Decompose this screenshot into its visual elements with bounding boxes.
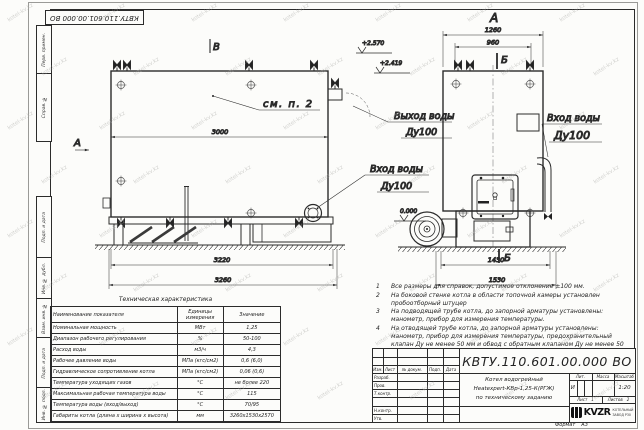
product-name: Котел водогрейный Heatexpert-КВр-1,25-К(… [459, 373, 569, 406]
technical-drawing: В см. п. 2 3000 А [50, 9, 634, 305]
table-row: Гидравлическое сопротивление котлаМПа (к… [51, 367, 281, 378]
col-header-units: Единицы измерения [177, 307, 223, 323]
dim-3260: 3260 [215, 276, 232, 284]
document-number: КВТУ.110.601.00.000 ВО [459, 349, 635, 373]
tb-lit-label: Лит. [569, 373, 592, 380]
lifting-lug-icon [451, 79, 462, 90]
kvzr-logo-icon [571, 407, 582, 418]
elevation-2570: +2.570 [362, 40, 384, 47]
tb-masshtab-value: 1:20 [614, 380, 635, 396]
dim-3000: 3000 [212, 128, 229, 136]
dim-960: 960 [487, 39, 499, 47]
outlet-water-label: Выход воды [394, 111, 455, 122]
ash-door [474, 221, 513, 241]
line [373, 397, 459, 398]
front-view-title-a: А [489, 11, 498, 25]
elevation-zero: 0.000 [400, 208, 417, 215]
tb-listov-cell: Листов 2 [602, 396, 635, 403]
burner-fan [410, 212, 457, 246]
outlet-dy100-label: Ду100 [405, 127, 437, 138]
inspection-hatch [517, 114, 539, 131]
safety-valve-icon [124, 61, 131, 71]
product-name-line3: по техническому заданию [476, 394, 553, 403]
elevation-2419: +2.419 [380, 60, 402, 67]
title-block: Изм. Лист № докум. Подп. Дата Разраб. Пр… [372, 348, 636, 423]
note-item: 3На подводящей трубе котла, до запорной … [376, 308, 630, 324]
line [577, 380, 578, 396]
fire-door [472, 175, 518, 219]
outlet-valve-icon [332, 79, 339, 89]
lifting-lug-icon [116, 80, 127, 91]
safety-valve-icon [467, 61, 474, 71]
table-row: Расход водым3/ч4,3 [51, 345, 281, 356]
product-name-line1: Котел водогрейный [485, 376, 543, 385]
table-row: Диапазон рабочего регулирования%50-100 [51, 334, 281, 345]
safety-valve-icon [311, 61, 318, 71]
dim-3220: 3220 [214, 256, 231, 264]
section-mark-b-bottom: Б [504, 253, 511, 264]
line [459, 406, 569, 407]
line [584, 380, 585, 396]
inlet-water-label-front: Вход воды [547, 113, 601, 124]
tb-massa-label: Масса [592, 373, 614, 380]
note-item: 1Все размеры для справок, допустимое отк… [376, 283, 630, 291]
lifting-lug-icon [458, 208, 469, 219]
safety-valve-icon [114, 61, 121, 71]
kvzr-logo-text: KVZR [584, 407, 611, 418]
tb-row-tkontr: Т.контр. [373, 389, 398, 397]
side-bracket [103, 198, 110, 208]
format-label: ФорматА3 [555, 422, 588, 428]
tb-row-razrab: Разраб. [373, 373, 398, 381]
tech-table-title: Техническая характеристика [78, 296, 253, 303]
line [443, 349, 444, 422]
lifting-lug-icon [116, 176, 127, 187]
outlet-stub [328, 89, 342, 100]
front-view: А 1260 960 Б [394, 11, 602, 289]
safety-valve-icon [246, 61, 253, 71]
col-header-value: Значение [223, 307, 280, 323]
line [373, 357, 459, 358]
tb-row-prov: Пров. [373, 381, 398, 389]
tb-masshtab-label: Масштаб [614, 373, 635, 380]
tb-header-izm: Изм. [373, 365, 383, 373]
section-mark-b-top: Б [501, 55, 508, 66]
table-row: Температура воды (вход/выход)°С70/95 [51, 400, 281, 411]
support-frame [109, 217, 333, 245]
inlet-dy100-label-side: Ду100 [380, 181, 412, 192]
drain-valve-icon [225, 217, 232, 227]
table-row: Максимальная рабочая температура воды°С1… [51, 389, 281, 400]
tb-row-utv: Утв. [373, 414, 398, 422]
kvzr-logo-subtext: КОТЕЛЬНЫЙ ЗАВОД Р30 [613, 408, 634, 416]
safety-valve-icon [455, 61, 462, 71]
lifting-lug-icon [246, 80, 257, 91]
tb-row-nkontr: Н.контр. [373, 406, 398, 414]
product-name-line2: Heatexpert-КВр-1,25-К(РГЖ) [474, 385, 555, 394]
col-header-name: Наименование показателя [51, 307, 178, 323]
tb-header-list: Лист [383, 365, 397, 373]
boiler-body-side [111, 71, 328, 217]
lifting-lug-icon [525, 79, 536, 90]
table-row: Рабочее давление водыМПа (кгс/см2)0,6 (6… [51, 356, 281, 367]
ground-hatch [95, 246, 345, 251]
drawing-sheet: КВТУ.110.601.00.000 ВО Перв. примен. Спр… [0, 0, 644, 430]
side-view: В см. п. 2 3000 А [73, 39, 455, 289]
table-row: Номинальная мощностьМВт1,25 [51, 323, 281, 334]
dim-1430: 1430 [488, 256, 505, 264]
view-mark-b: В [213, 42, 220, 53]
inlet-flange [305, 205, 322, 222]
tb-header-doc: № докум. [397, 365, 427, 373]
tb-header-podp: Подп. [427, 365, 443, 373]
drain-valve-icon [296, 217, 303, 227]
ground-hatch [398, 248, 566, 253]
safety-valve-icon [527, 61, 534, 71]
tech-characteristics-table: Наименование показателя Единицы измерени… [50, 306, 281, 422]
tb-header-data: Дата [443, 365, 459, 373]
table-row: Габариты котла (длина х ширина х высота)… [51, 411, 281, 422]
inlet-water-label-side: Вход воды [370, 164, 424, 175]
company-logo: KVZR КОТЕЛЬНЫЙ ЗАВОД Р30 [569, 403, 635, 422]
notes-list: 1Все размеры для справок, допустимое отк… [376, 283, 630, 357]
tb-list-cell: Лист 1 [569, 396, 602, 403]
dim-1260: 1260 [485, 26, 502, 34]
callout-see-item-2: см. п. 2 [263, 99, 314, 110]
table-row: Температура уходящих газов°Сне более 220 [51, 378, 281, 389]
drain-valve-icon [167, 217, 174, 227]
table-header-row: Наименование показателя Единицы измерени… [51, 307, 281, 323]
inlet-dy100-label-front: Ду100 [553, 129, 590, 142]
section-mark-a: А [73, 138, 81, 149]
line [427, 349, 428, 422]
note-item: 2На боковой стенке котла в области топоч… [376, 292, 630, 308]
tb-lit-value: И [569, 380, 577, 396]
